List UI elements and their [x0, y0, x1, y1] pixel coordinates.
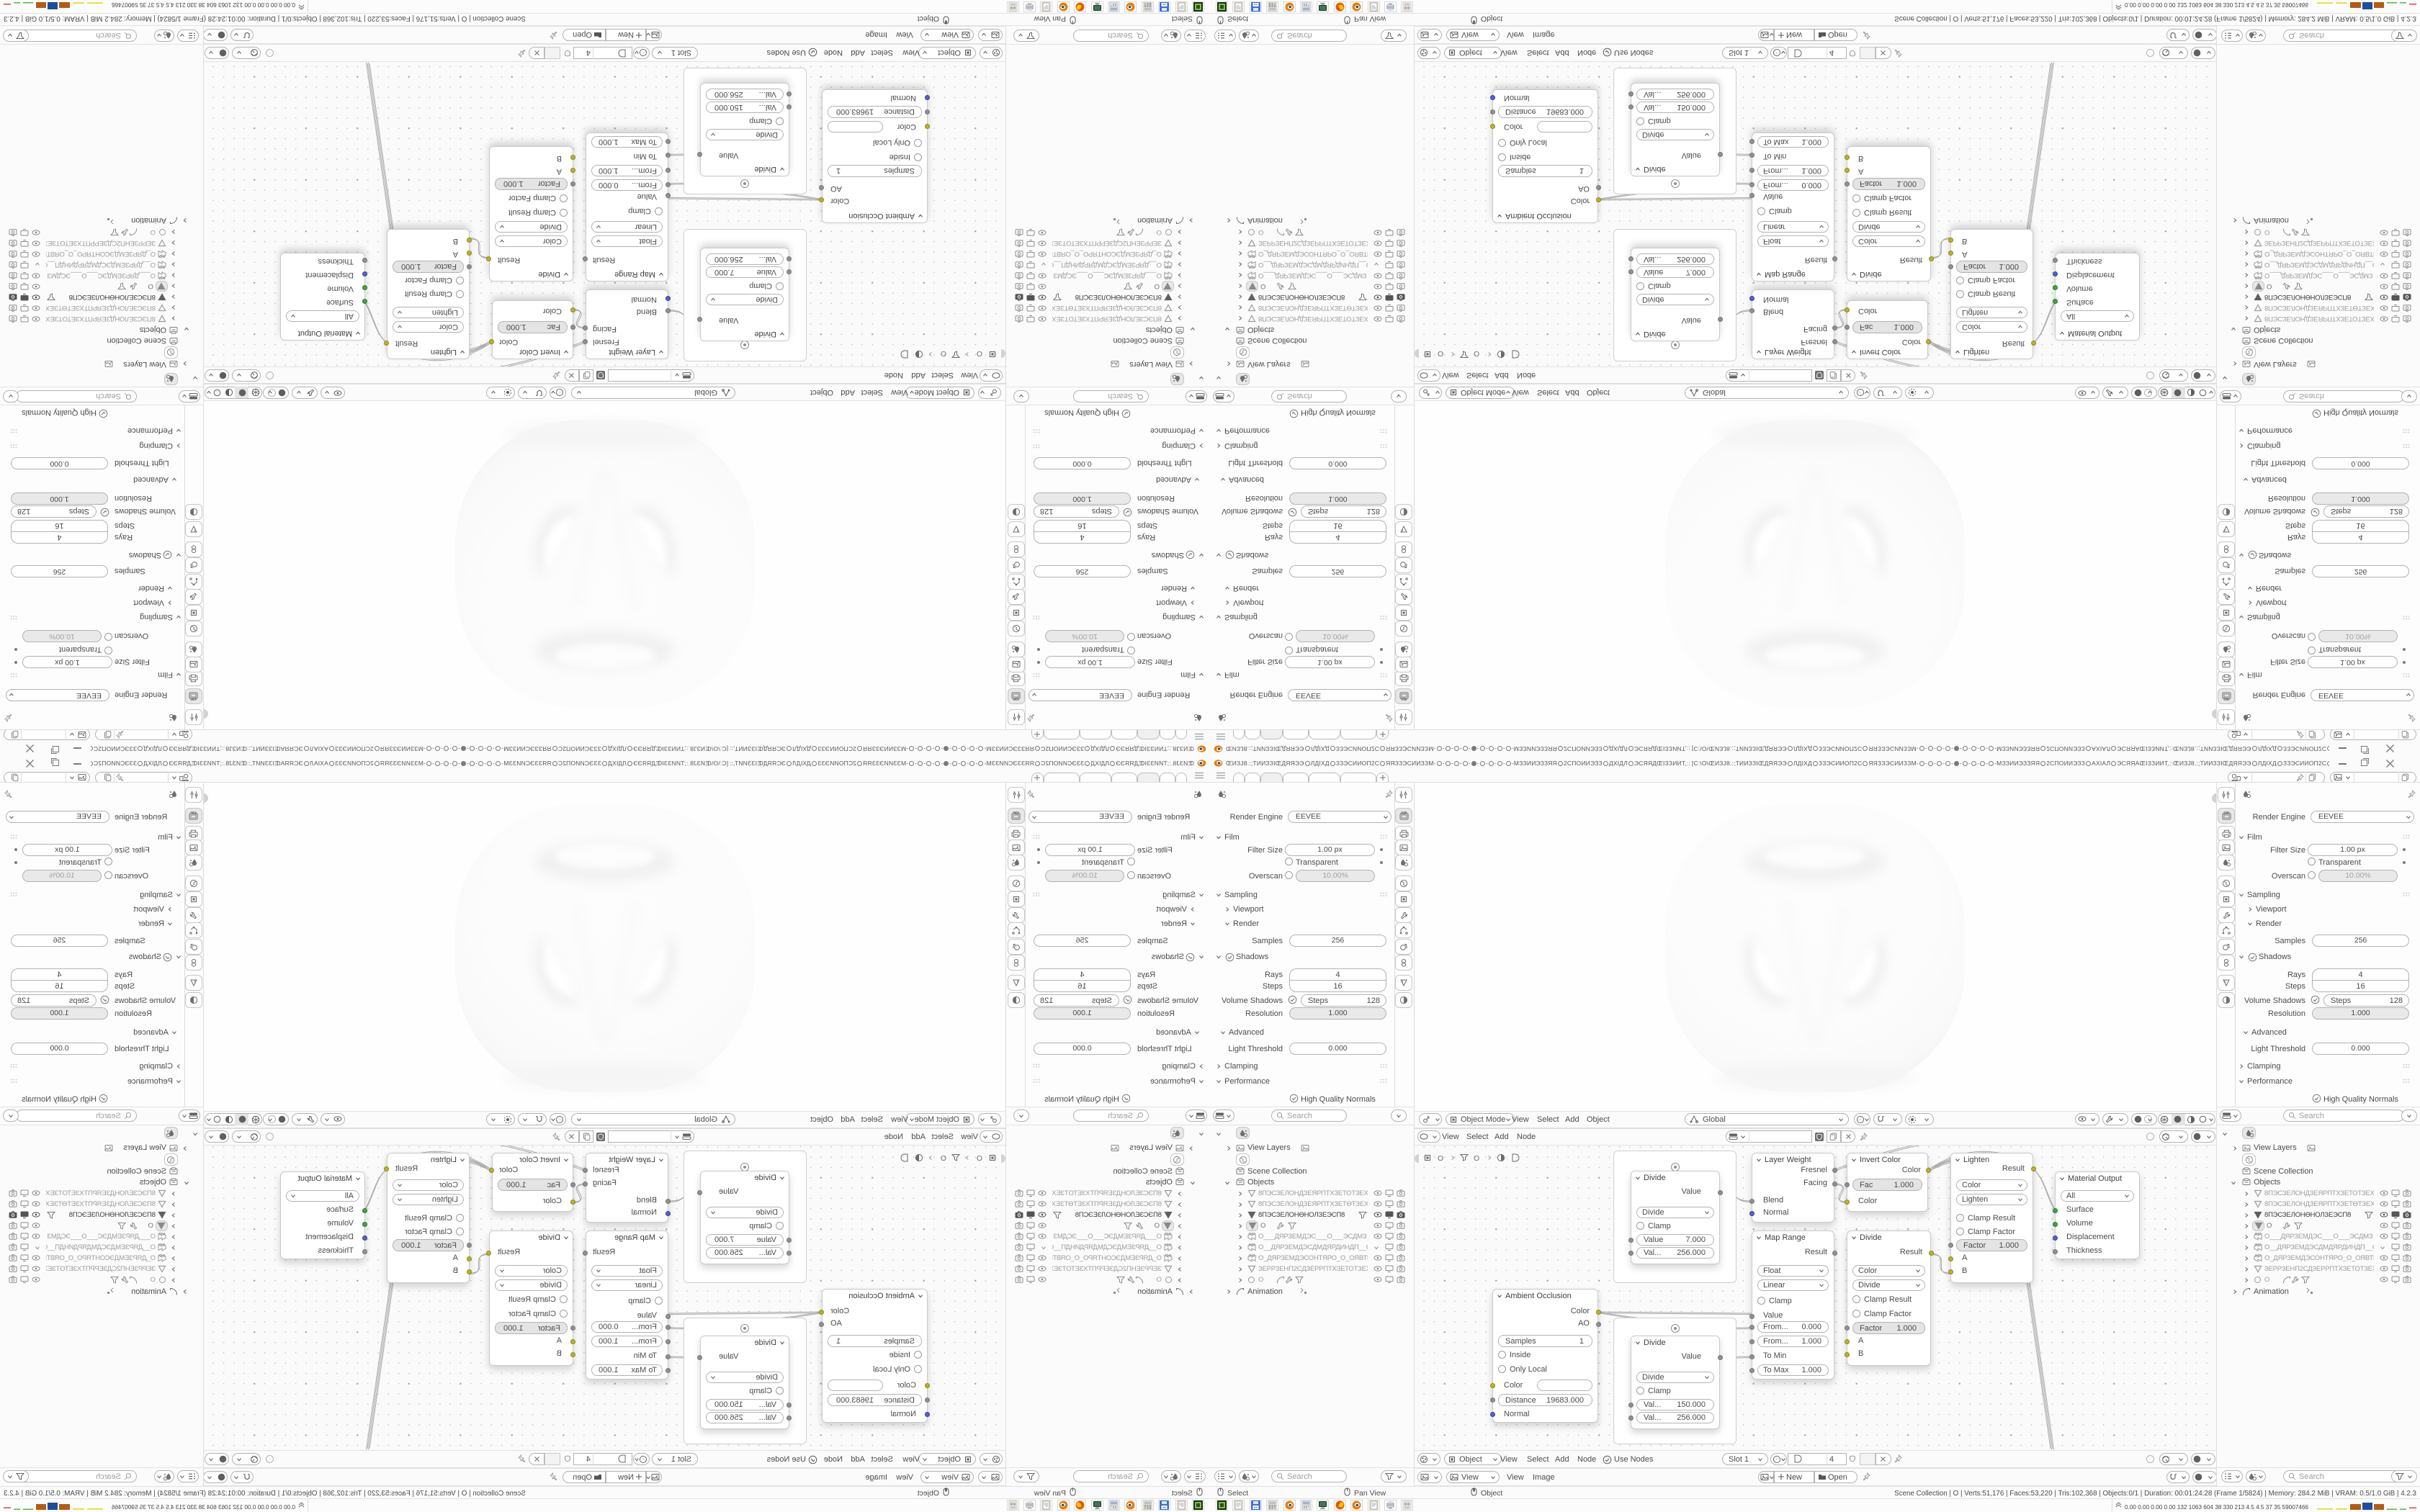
- svg-text:64: 64: [1162, 1506, 1166, 1509]
- svg-text:64: 64: [1254, 3, 1258, 6]
- svg-text:64: 64: [1254, 1506, 1258, 1509]
- svg-text:64: 64: [1162, 3, 1166, 6]
